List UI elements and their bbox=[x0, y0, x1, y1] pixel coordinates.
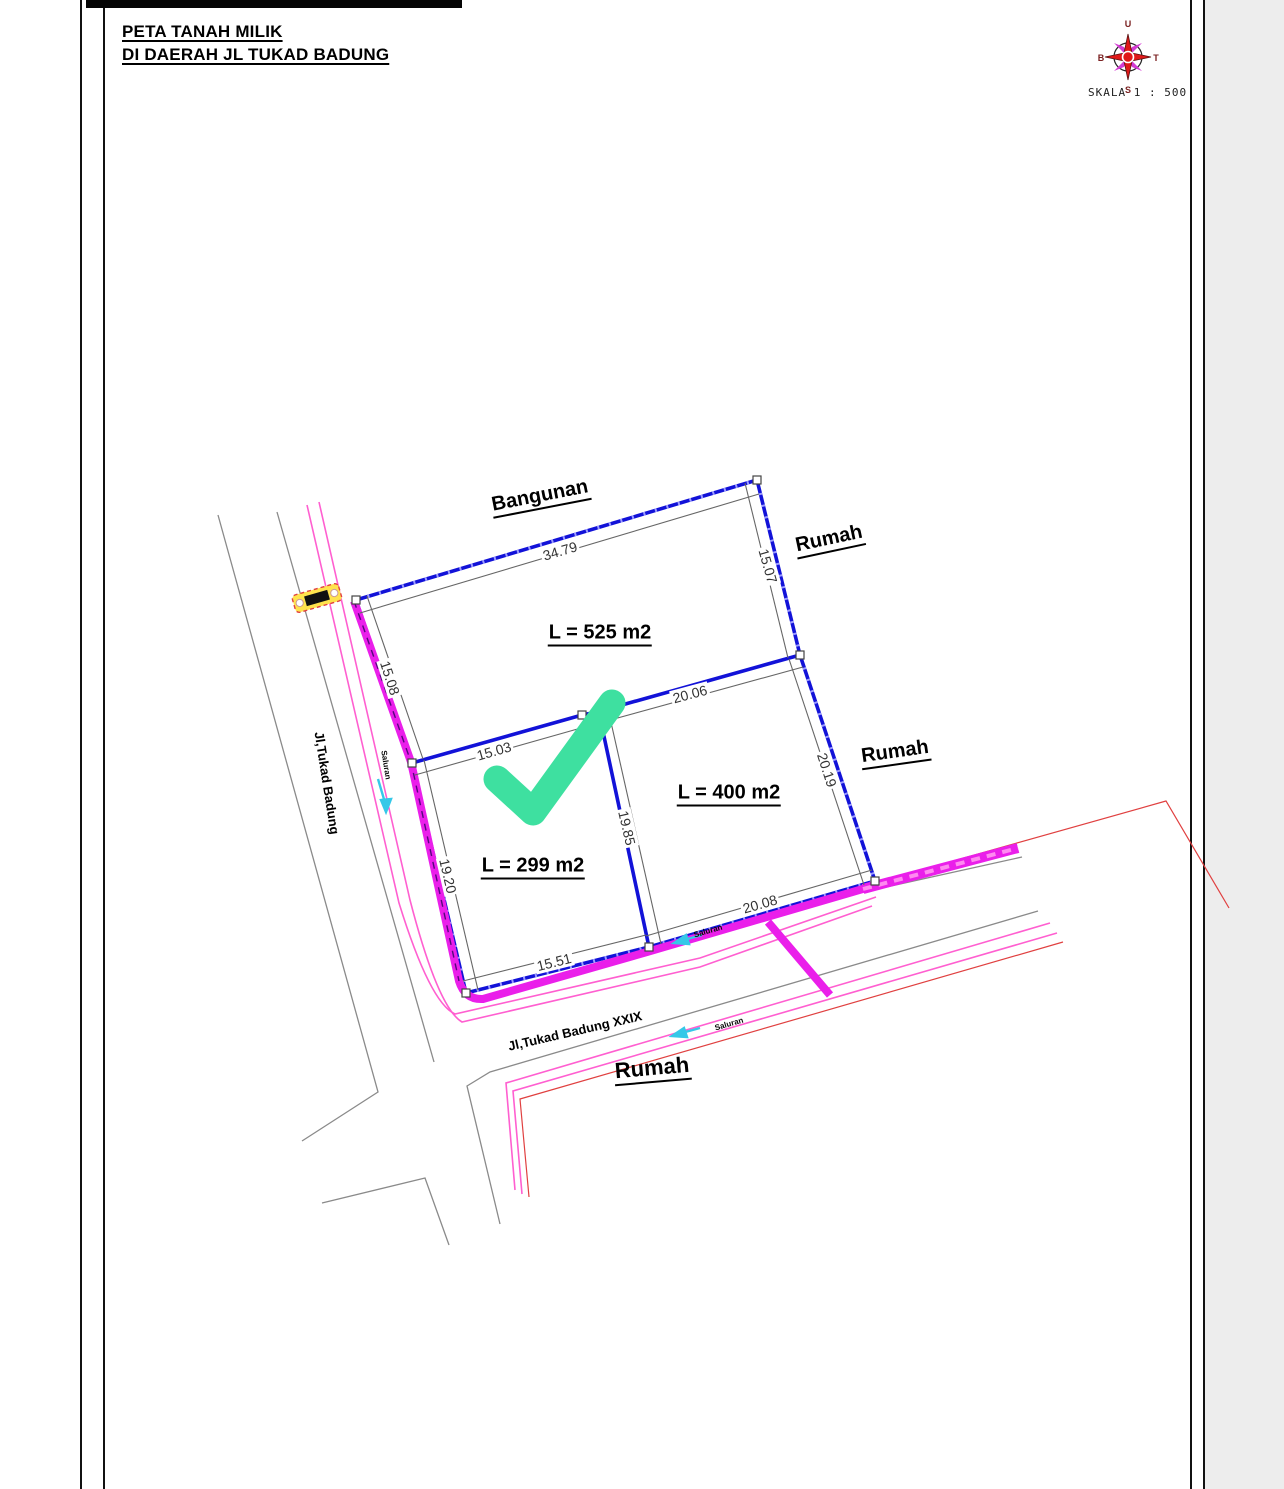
compass-east-letter: T bbox=[1153, 53, 1159, 63]
neighbor-block-lines bbox=[506, 923, 1063, 1197]
neighbor-boundary-red-line bbox=[864, 801, 1229, 908]
map-linework bbox=[0, 0, 1284, 1489]
road-crossing-stub bbox=[768, 922, 830, 995]
compass-west-letter: B bbox=[1098, 53, 1105, 63]
survey-map-sheet: PETA TANAH MILIK DI DAERAH JL TUKAD BADU… bbox=[0, 0, 1284, 1489]
parcel-block-fill bbox=[356, 480, 875, 993]
compass-north-letter: U bbox=[1125, 19, 1132, 29]
compass-icon bbox=[1105, 34, 1151, 80]
compass-south-letter: S bbox=[1125, 85, 1131, 95]
